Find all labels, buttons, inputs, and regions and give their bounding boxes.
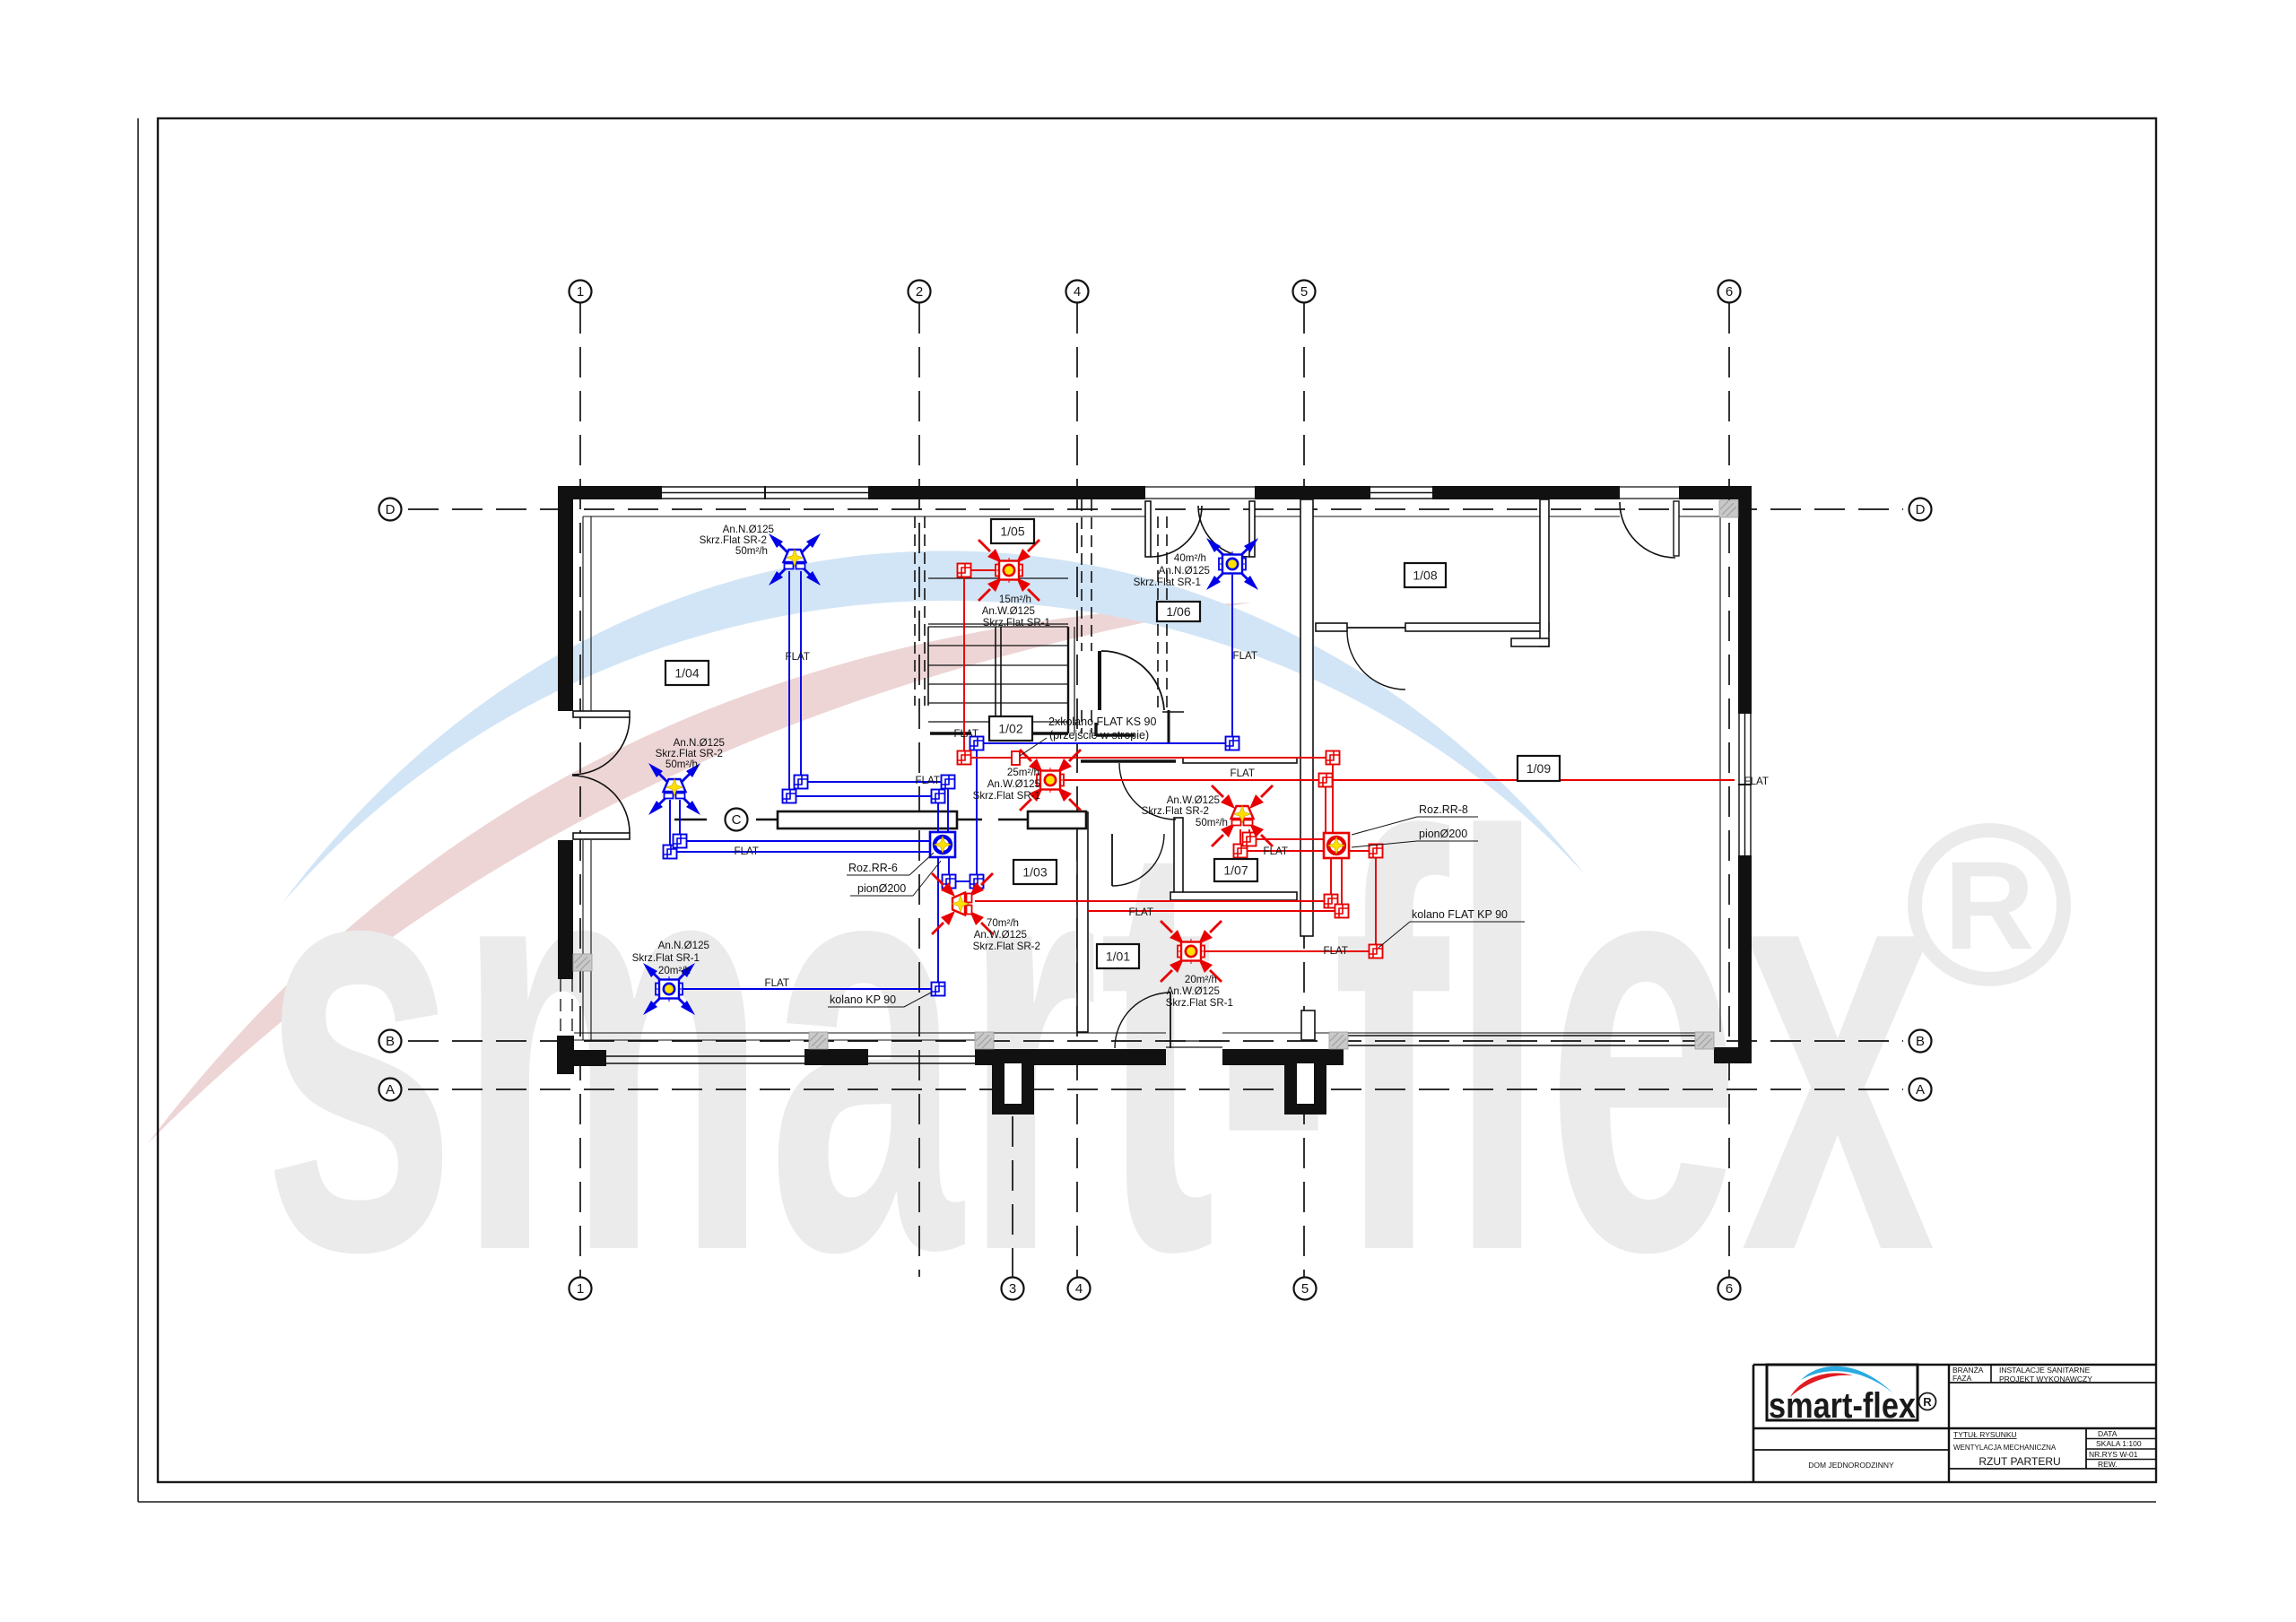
svg-text:50m²/h: 50m²/h [1196,817,1228,828]
svg-text:D: D [1916,502,1926,517]
svg-text:2: 2 [916,284,923,299]
svg-text:4: 4 [1074,284,1081,299]
svg-text:FLAT: FLAT [765,977,789,989]
svg-text:pionØ200: pionØ200 [1419,828,1467,840]
svg-text:FLAT: FLAT [954,728,978,740]
svg-text:1/01: 1/01 [1106,950,1130,964]
svg-text:FLAT: FLAT [735,846,759,857]
svg-text:40m²/h: 40m²/h [1174,552,1206,564]
svg-text:REW.: REW. [2098,1460,2118,1469]
svg-text:smart-flex: smart-flex [262,715,1937,1374]
svg-text:FLAT: FLAT [1231,768,1255,779]
svg-text:FLAT: FLAT [1233,650,1257,662]
svg-text:FAZA: FAZA [1952,1374,1972,1383]
svg-text:25m²/h: 25m²/h [1007,767,1039,778]
svg-text:15m²/h: 15m²/h [999,594,1031,605]
svg-text:B: B [386,1034,395,1049]
svg-text:Skrz.Flat SR-1: Skrz.Flat SR-1 [983,617,1050,629]
svg-text:1/02: 1/02 [998,722,1022,736]
svg-text:R: R [1944,835,2034,976]
svg-text:kolano FLAT KP 90: kolano FLAT KP 90 [1412,908,1508,921]
svg-text:Skrz.Flat SR-2: Skrz.Flat SR-2 [1142,805,1209,817]
svg-text:SKALA 1:100: SKALA 1:100 [2096,1439,2142,1448]
svg-text:5: 5 [1300,284,1308,299]
svg-text:6: 6 [1726,1281,1733,1297]
svg-text:FLAT: FLAT [1264,846,1288,857]
svg-text:Skrz.Flat SR-1: Skrz.Flat SR-1 [973,790,1040,802]
svg-text:TYTUŁ RYSUNKU: TYTUŁ RYSUNKU [1953,1430,2017,1439]
svg-text:INSTALACJE SANITARNE: INSTALACJE SANITARNE [1999,1366,2091,1375]
svg-text:(przejście w stropie): (przejście w stropie) [1049,729,1149,742]
svg-text:5: 5 [1301,1281,1309,1297]
svg-text:NR.RYS W-01: NR.RYS W-01 [2089,1450,2138,1459]
svg-text:An.N.Ø125: An.N.Ø125 [1159,565,1210,577]
svg-text:FLAT: FLAT [786,651,810,663]
svg-text:RZUT PARTERU: RZUT PARTERU [1979,1455,2060,1468]
svg-text:1/09: 1/09 [1526,761,1551,776]
svg-text:pionØ200: pionØ200 [857,882,906,895]
svg-text:smart-flex: smart-flex [1769,1386,1916,1426]
svg-text:DOM JEDNORODZINNY: DOM JEDNORODZINNY [1808,1461,1894,1470]
svg-text:Roz.RR-8: Roz.RR-8 [1419,803,1468,816]
svg-text:FLAT: FLAT [1744,776,1769,787]
svg-text:R: R [1923,1395,1932,1409]
svg-text:Roz.RR-6: Roz.RR-6 [848,862,898,874]
svg-text:Skrz.Flat SR-1: Skrz.Flat SR-1 [1134,577,1201,588]
svg-text:1/08: 1/08 [1413,568,1437,583]
svg-text:1: 1 [577,284,584,299]
svg-text:A: A [386,1082,395,1097]
svg-text:50m²/h: 50m²/h [665,759,698,770]
svg-text:50m²/h: 50m²/h [735,545,768,557]
svg-text:70m²/h: 70m²/h [987,917,1019,929]
svg-text:DATA: DATA [2098,1429,2118,1438]
svg-text:1/05: 1/05 [1000,525,1024,539]
svg-text:Skrz.Flat SR-2: Skrz.Flat SR-2 [973,941,1040,952]
svg-text:FLAT: FLAT [1324,945,1348,957]
svg-text:A: A [1916,1082,1925,1097]
svg-text:2xkolano FLAT KS 90: 2xkolano FLAT KS 90 [1048,716,1156,728]
svg-text:PROJEKT WYKONAWCZY: PROJEKT WYKONAWCZY [1999,1375,2092,1383]
svg-text:1/06: 1/06 [1166,604,1190,619]
svg-text:1/04: 1/04 [674,666,699,681]
svg-text:1/07: 1/07 [1223,863,1248,878]
svg-text:20m²/h: 20m²/h [1185,974,1217,985]
svg-text:kolano KP 90: kolano KP 90 [830,993,896,1006]
svg-text:C: C [732,812,742,828]
svg-text:An.W.Ø125: An.W.Ø125 [987,778,1040,790]
svg-text:6: 6 [1726,284,1733,299]
svg-text:Skrz.Flat SR-1: Skrz.Flat SR-1 [1166,997,1233,1009]
svg-text:1: 1 [577,1281,584,1297]
svg-text:4: 4 [1075,1281,1083,1297]
svg-text:Skrz.Flat SR-1: Skrz.Flat SR-1 [632,952,700,964]
svg-text:20m²/h: 20m²/h [658,965,691,976]
svg-text:WENTYLACJA MECHANICZNA: WENTYLACJA MECHANICZNA [1953,1444,2057,1452]
svg-text:D: D [386,502,396,517]
svg-text:An.W.Ø125: An.W.Ø125 [982,605,1035,617]
svg-text:FLAT: FLAT [1129,906,1153,918]
svg-text:FLAT: FLAT [916,775,940,786]
svg-text:An.N.Ø125: An.N.Ø125 [658,940,709,951]
svg-text:An.W.Ø125: An.W.Ø125 [1167,985,1220,997]
svg-text:B: B [1916,1034,1925,1049]
svg-text:1/03: 1/03 [1022,865,1047,880]
svg-text:An.W.Ø125: An.W.Ø125 [974,929,1027,941]
svg-text:3: 3 [1009,1281,1016,1297]
